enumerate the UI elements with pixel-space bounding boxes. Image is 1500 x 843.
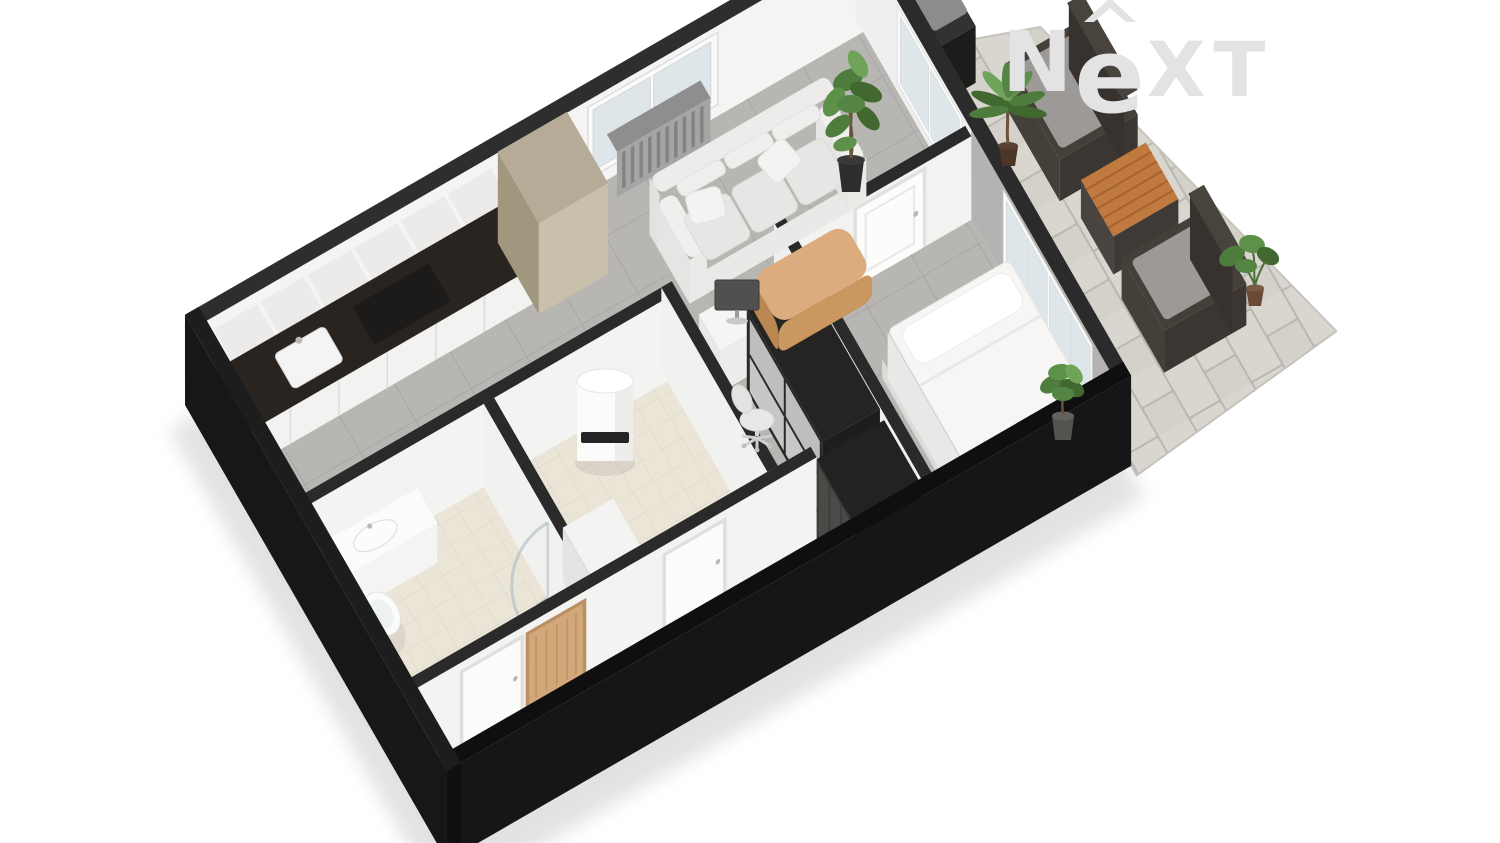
logo-letter-e-wrap: e xyxy=(1074,10,1145,128)
floor-plan-render xyxy=(0,0,1500,843)
logo-letter-x: X xyxy=(1147,32,1208,108)
logo-letter-e: e xyxy=(1074,24,1145,128)
logo-letter-t: T xyxy=(1213,32,1265,108)
water-heater xyxy=(575,369,635,476)
house-roof-icon xyxy=(1084,0,1136,22)
floor-plan-canvas: N e X T xyxy=(0,0,1500,843)
watermark-logo: N e X T xyxy=(1002,10,1265,128)
logo-letter-n: N xyxy=(1002,20,1072,104)
